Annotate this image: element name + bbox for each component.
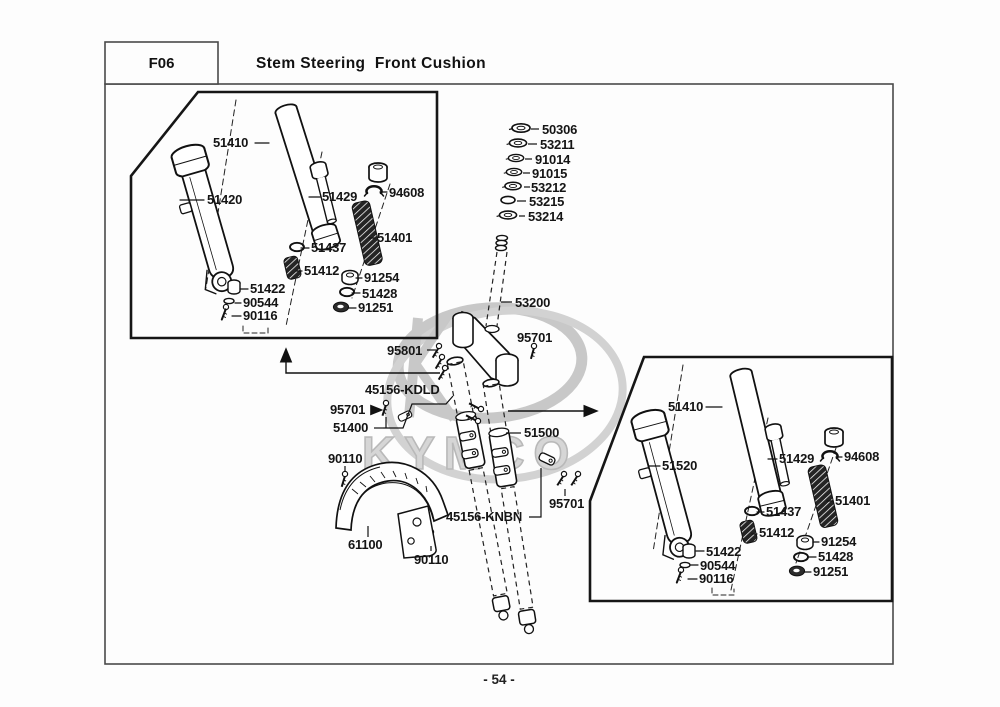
part-label-94608-right-box: 94608 [844, 450, 879, 463]
part-label-53211: 53211 [540, 138, 574, 151]
part-label-51429-right-box: 51429 [779, 452, 814, 465]
fork-tube-drawing-left [273, 102, 342, 252]
part-label-95701-stem: 95701 [517, 331, 552, 344]
washer-drawing-right [680, 562, 690, 567]
washer-drawing-left [224, 298, 234, 303]
part-label-91015: 91015 [532, 167, 567, 180]
bushing-drawing-left [228, 280, 240, 294]
oil-seal-drawing-left [333, 302, 348, 312]
part-label-51437-left-box: 51437 [311, 241, 346, 254]
part-label-51500: 51500 [524, 426, 559, 439]
ring-drawing-left [290, 243, 304, 251]
fork-bridge-drawing [453, 312, 518, 386]
nut-drawing-left [342, 271, 358, 285]
part-label-51420: 51420 [207, 193, 242, 206]
main-spring-drawing-right [807, 464, 838, 528]
part-label-90110-front: 90110 [328, 452, 362, 465]
spring-seat-drawing-left [369, 163, 387, 182]
part-label-51401-left-box: 51401 [377, 231, 412, 244]
part-label-95701-left: 95701 [330, 403, 365, 416]
bushing-drawing-right [683, 544, 695, 558]
part-label-91254-right-box: 91254 [821, 535, 856, 548]
back-ring-drawing-right [794, 553, 808, 561]
part-label-95701-right: 95701 [549, 497, 584, 510]
part-label-45156-knbn: 45156-KNBN [446, 510, 522, 523]
part-label-91014: 91014 [535, 153, 570, 166]
part-label-51422-left-box: 51422 [250, 282, 285, 295]
part-label-53200: 53200 [515, 296, 550, 309]
part-label-51400: 51400 [333, 421, 368, 434]
part-label-90116-left-box: 90116 [243, 309, 277, 322]
part-label-90110-rear: 90110 [414, 553, 448, 566]
part-label-51437-right-box: 51437 [766, 505, 801, 518]
part-label-51412-right-box: 51412 [759, 526, 794, 539]
part-label-45156-kdld: 45156-KDLD [365, 383, 440, 396]
nut-drawing-right [797, 536, 813, 550]
part-label-51412-left-box: 51412 [304, 264, 339, 277]
part-label-51428-left-box: 51428 [362, 287, 397, 300]
part-label-51422-right-box: 51422 [706, 545, 741, 558]
part-label-53214: 53214 [528, 210, 563, 223]
back-ring-drawing-left [340, 288, 354, 296]
snap-ring-drawing-right [821, 451, 840, 461]
exploded-diagram-art: KYMCO [0, 0, 1000, 707]
part-label-91251-right-box: 91251 [813, 565, 848, 578]
part-label-51429-left-box: 51429 [322, 190, 357, 203]
part-label-53215: 53215 [529, 195, 564, 208]
part-label-51410-right-box: 51410 [668, 400, 703, 413]
bolt-drawing-right [677, 567, 684, 583]
spring-seat-drawing-right [825, 428, 843, 447]
part-label-51428-right-box: 51428 [818, 550, 853, 563]
stem-bolt-drawing [531, 343, 537, 359]
part-label-50306: 50306 [542, 123, 577, 136]
part-label-51401-right-box: 51401 [835, 494, 870, 507]
part-label-53212: 53212 [531, 181, 566, 194]
parts-catalog-page: KYMCO [0, 0, 1000, 707]
part-label-61100: 61100 [348, 538, 382, 551]
rebound-spring-drawing-left [283, 255, 302, 280]
part-label-51520: 51520 [662, 459, 697, 472]
part-label-91251-left-box: 91251 [358, 301, 393, 314]
page-number: - 54 - [459, 672, 539, 687]
bolt-drawing-left [222, 304, 229, 320]
snap-ring-drawing-left [365, 186, 384, 196]
ring-drawing-right [745, 507, 759, 515]
page-title: Stem Steering Front Cushion [256, 55, 486, 73]
fork-leg-drawing-right [624, 407, 701, 562]
fork-leg-drawing-left [164, 142, 244, 297]
part-label-94608-left-box: 94608 [389, 186, 424, 199]
part-label-51410-left-box: 51410 [213, 136, 248, 149]
part-label-95801: 95801 [387, 344, 422, 357]
oil-seal-drawing-right [789, 566, 804, 576]
section-code: F06 [105, 42, 218, 84]
part-label-90116-right-box: 90116 [699, 572, 733, 585]
part-label-91254-left-box: 91254 [364, 271, 399, 284]
